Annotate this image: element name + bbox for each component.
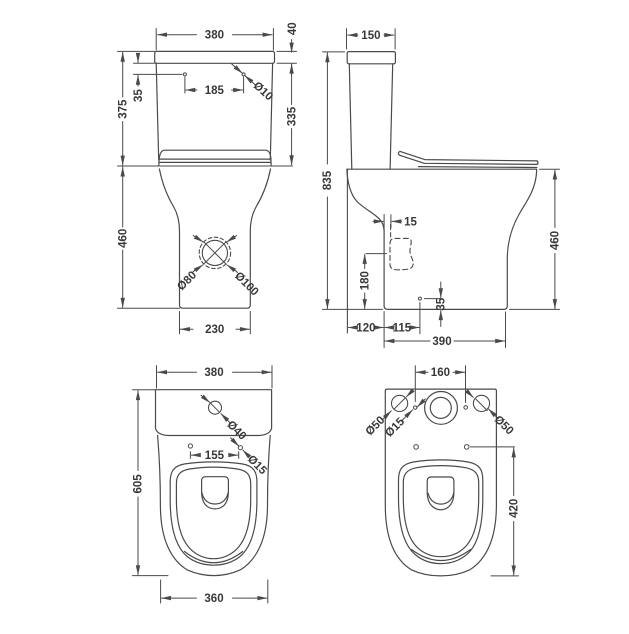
svg-text:375: 375: [117, 99, 129, 119]
svg-text:160: 160: [431, 367, 450, 379]
svg-text:155: 155: [205, 450, 225, 462]
svg-text:460: 460: [550, 231, 562, 250]
svg-text:15: 15: [404, 216, 417, 228]
svg-text:120: 120: [356, 322, 375, 334]
svg-text:460: 460: [117, 229, 129, 248]
svg-text:150: 150: [361, 30, 380, 42]
svg-text:40: 40: [287, 22, 299, 35]
svg-text:185: 185: [205, 85, 225, 97]
svg-text:335: 335: [286, 106, 298, 126]
svg-text:Ø50: Ø50: [492, 414, 516, 438]
svg-text:Ø80: Ø80: [175, 269, 199, 293]
svg-text:Ø100: Ø100: [232, 270, 260, 298]
svg-text:360: 360: [204, 593, 223, 605]
svg-text:605: 605: [133, 474, 145, 494]
svg-text:35: 35: [133, 89, 145, 102]
svg-text:Ø40: Ø40: [224, 419, 248, 443]
svg-text:380: 380: [204, 367, 223, 379]
svg-text:180: 180: [359, 271, 371, 290]
svg-text:230: 230: [205, 324, 224, 336]
svg-text:390: 390: [432, 336, 451, 348]
svg-text:420: 420: [508, 499, 520, 518]
svg-text:35: 35: [436, 297, 448, 310]
svg-text:380: 380: [205, 30, 224, 42]
svg-text:115: 115: [393, 322, 412, 334]
svg-text:835: 835: [322, 170, 334, 190]
